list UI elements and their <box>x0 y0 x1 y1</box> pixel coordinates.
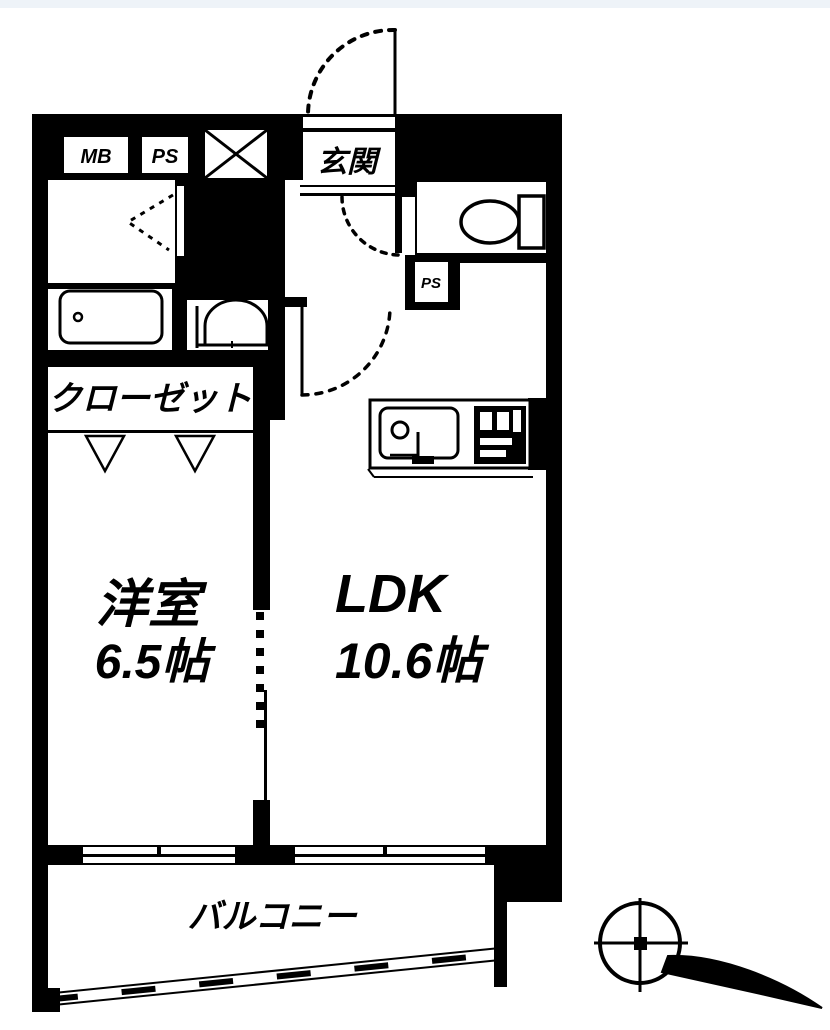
wall-bath-divider <box>48 283 175 289</box>
wall-divider-top <box>253 360 270 610</box>
compass-hub <box>634 937 647 950</box>
window-line <box>295 845 485 847</box>
balcony-railing <box>44 948 500 1006</box>
label-entrance: 玄関 <box>317 146 382 179</box>
wall-balcony-right <box>494 845 507 987</box>
wall-under-bath <box>48 350 283 367</box>
railing-line <box>44 948 500 994</box>
bathtub-drain <box>74 313 82 321</box>
window-mullion <box>157 845 161 857</box>
hanger-mark <box>86 436 124 471</box>
toilet-tank <box>519 196 544 248</box>
genkan-step-line <box>300 193 395 196</box>
partition-thin-line <box>264 690 267 802</box>
wall-window-seg <box>32 845 83 865</box>
label-closet: クローゼット <box>48 380 252 418</box>
railing-line <box>44 960 500 1006</box>
kitchen-faucet <box>392 422 408 438</box>
wall-toilet-top <box>417 132 546 182</box>
washroom-door-slot <box>177 186 184 256</box>
washbasin <box>197 300 272 348</box>
label-balcony: バルコニー <box>187 898 357 936</box>
toilet <box>461 196 544 248</box>
wall-hall-bottom <box>268 297 307 307</box>
label-western-room-size: 6.5帖 <box>95 636 217 689</box>
floor-plan-page: 玄関 MB PS PS クローゼット 洋室 6.5帖 LDK 10.6帖 バルコ… <box>0 0 830 1030</box>
wall-right <box>546 114 562 845</box>
window-line <box>295 854 485 857</box>
railing-dashes <box>44 954 500 1000</box>
toilet-bowl <box>461 201 519 243</box>
stove-grill <box>474 406 526 464</box>
kitchen <box>368 400 533 477</box>
kitchen-drainboard <box>412 456 434 464</box>
toilet-door-arc <box>342 197 400 255</box>
toilet-door-slot <box>402 197 415 255</box>
label-pipe-space-top: PS <box>152 146 179 168</box>
compass-arrow-leaf <box>662 956 822 1008</box>
walls <box>32 114 562 1012</box>
window-line <box>83 863 235 865</box>
wall-top-left <box>32 114 303 132</box>
wall-window-seg <box>235 845 295 865</box>
wall-divider-bottom <box>253 800 270 845</box>
ldk-door-arc <box>302 307 390 395</box>
genkan-step-line <box>300 185 395 187</box>
label-pipe-space-small: PS <box>421 275 441 292</box>
hanger-mark <box>176 436 214 471</box>
closet-bottom-line <box>48 430 253 433</box>
compass-north-arrow <box>594 898 822 1008</box>
entrance-threshold-line <box>303 128 395 132</box>
window-mullion <box>383 845 387 857</box>
label-ldk-size: 10.6帖 <box>335 633 489 689</box>
window-line <box>295 863 485 865</box>
label-ldk: LDK <box>335 564 450 624</box>
closet-hanger-marks <box>86 436 214 471</box>
label-meter-box: MB <box>80 146 111 168</box>
entrance-door-arc <box>308 30 395 114</box>
entrance-threshold-line <box>303 114 395 117</box>
floor-plan-drawing: 玄関 MB PS PS クローゼット 洋室 6.5帖 LDK 10.6帖 バルコ… <box>0 0 830 1030</box>
wall-left <box>32 114 48 1012</box>
wall-basin-left <box>172 287 187 353</box>
wall-top-right <box>395 114 562 132</box>
label-western-room: 洋室 <box>96 576 208 634</box>
kitchen-front-corner <box>368 469 374 477</box>
folding-door-mark <box>128 195 173 250</box>
sliding-partition <box>256 612 267 802</box>
